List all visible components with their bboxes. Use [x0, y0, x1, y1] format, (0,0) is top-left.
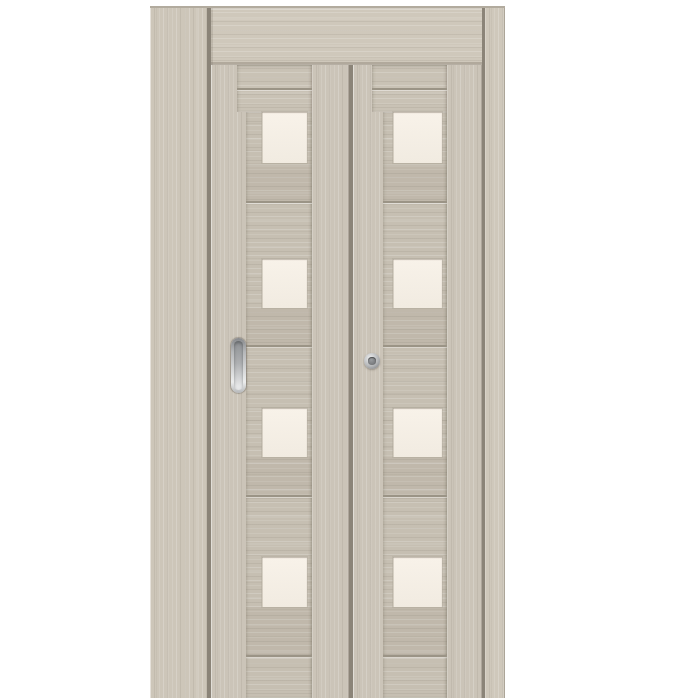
panel-seam: [246, 655, 312, 657]
lock-knob: [364, 353, 380, 369]
glass-insert: [262, 408, 307, 457]
top-track-header: [211, 8, 482, 65]
panel-seam: [246, 201, 312, 203]
panel-band-shade: [246, 308, 312, 345]
panel-seam: [383, 495, 447, 497]
glass-insert: [393, 259, 442, 308]
left-leaf-right-stile: [312, 65, 349, 698]
door-leaf-left: [211, 65, 349, 698]
product-photo-stage: [0, 0, 700, 700]
recessed-pull-handle: [231, 338, 246, 393]
panel-band-shade: [383, 607, 447, 655]
glass-insert: [393, 557, 442, 607]
door-top-edge: [150, 6, 505, 8]
panel-band-shade: [383, 163, 447, 201]
panel-band-shade: [383, 457, 447, 495]
panel-seam: [383, 201, 447, 203]
right-track-strip: [485, 6, 505, 698]
panel-band-shade: [383, 308, 447, 345]
rail-seam: [372, 88, 447, 90]
folding-door: [150, 6, 505, 698]
rail-seam: [237, 88, 312, 90]
glass-insert: [262, 557, 307, 607]
panel-band-shade: [246, 607, 312, 655]
panel-seam: [246, 345, 312, 347]
panel-band-shade: [246, 457, 312, 495]
panel-seam: [383, 345, 447, 347]
glass-insert: [393, 112, 442, 163]
right-leaf-right-stile: [447, 65, 482, 698]
door-leaf-right: [353, 65, 482, 698]
glass-insert: [262, 112, 307, 163]
left-leaf-top-rail: [237, 65, 312, 112]
right-leaf-top-rail: [372, 65, 447, 112]
left-track-strip: [150, 6, 207, 698]
glass-insert: [393, 408, 442, 457]
right-leaf-panel: [383, 112, 447, 698]
panel-band-shade: [246, 163, 312, 201]
right-leaf-left-stile: [353, 65, 383, 698]
panel-seam: [383, 655, 447, 657]
left-leaf-panel: [246, 112, 312, 698]
glass-insert: [262, 259, 307, 308]
panel-seam: [246, 495, 312, 497]
